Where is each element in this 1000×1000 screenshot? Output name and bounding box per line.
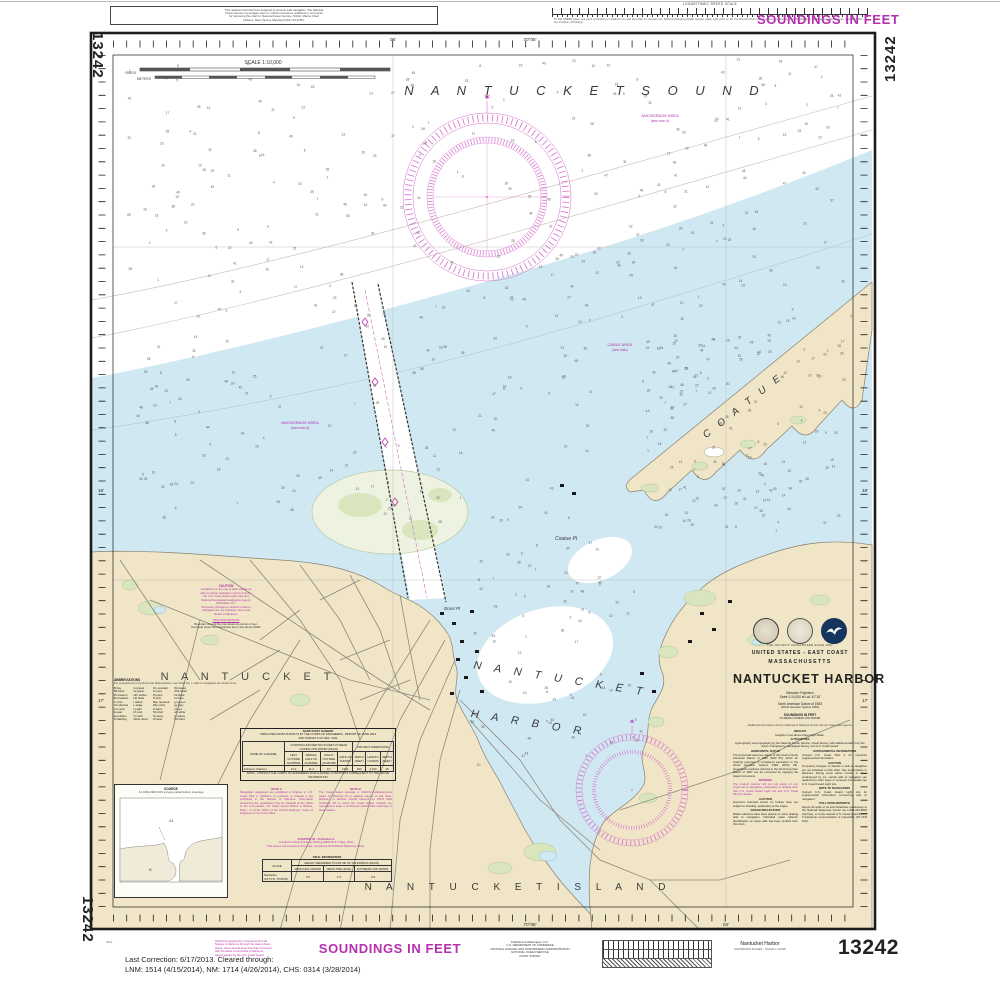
sounding: 24 xyxy=(725,525,729,529)
sounding: 19 xyxy=(830,458,834,462)
sounding: 21 xyxy=(373,384,377,388)
edge-label-bottom: 70°05' xyxy=(524,922,537,927)
chart-number-bottom-left: 13242 xyxy=(79,896,96,943)
sounding: 9 xyxy=(492,106,494,110)
sounding: 31 xyxy=(710,221,714,225)
sounding: 4 xyxy=(821,75,823,79)
sounding: 8 xyxy=(177,64,179,68)
sounding: 41 xyxy=(639,730,643,734)
sounding: 17 xyxy=(679,488,683,492)
sounding: 9 xyxy=(635,718,637,722)
sounding: 43 xyxy=(170,482,174,486)
sounding: 6 xyxy=(175,506,177,510)
sounding: 44 xyxy=(743,176,747,180)
sounding: 4 xyxy=(819,409,821,413)
sounding: 20 xyxy=(480,559,484,563)
sounding: 23 xyxy=(510,298,514,302)
sounding: 8 xyxy=(479,64,481,68)
note-line: Division, Silver Spring, Maryland (301-7… xyxy=(115,19,433,22)
sounding: 21 xyxy=(400,205,404,209)
unit-conversion-grid xyxy=(602,940,712,968)
sounding: 16 xyxy=(160,141,164,145)
correction-note: Last Correction: 6/17/2013. Cleared thro… xyxy=(125,955,361,975)
sounding: 29 xyxy=(528,195,532,199)
sounding: 33 xyxy=(615,600,619,604)
sounding: 36 xyxy=(759,509,763,513)
sounding: 30 xyxy=(564,354,568,358)
sounding: 1 xyxy=(698,295,700,299)
sounding: 5 xyxy=(642,380,644,384)
sounding: 7 xyxy=(237,502,239,506)
sounding: 23 xyxy=(635,738,639,742)
sounding: 39 xyxy=(310,190,314,194)
label-nantucket-sound: N A N T U C K E T S O U N D xyxy=(404,83,765,98)
sounding: 2 xyxy=(412,125,414,129)
sounding: 28 xyxy=(511,239,515,243)
sounding: 22 xyxy=(695,383,699,387)
sounding: 35 xyxy=(735,502,739,506)
sounding: 37 xyxy=(636,233,640,237)
note-b: NOTE B The Coast Guard operates a VHF-FM… xyxy=(319,788,392,816)
scale-bar: SCALE 1:10,000 YARDS METERS xyxy=(125,60,390,81)
sounding: 18 xyxy=(547,585,551,589)
sounding: 15 xyxy=(748,455,752,459)
speed-scale-title: LOGARITHMIC SPEED SCALE xyxy=(552,2,868,6)
sounding: 39 xyxy=(816,374,820,378)
sounding: 49 xyxy=(383,204,387,208)
tidal-information-table: TIDAL INFORMATION PLACE HEIGHT REFERRED … xyxy=(262,856,392,882)
sounding: 45 xyxy=(364,193,368,197)
notes-a-b: NOTE A Navigation regulations are publis… xyxy=(240,788,392,816)
sounding: 43 xyxy=(582,260,586,264)
sounding: 43 xyxy=(779,59,783,63)
plate-note: 4601 xyxy=(106,941,112,944)
sounding: 2 xyxy=(850,314,852,318)
sounding: 20 xyxy=(699,304,703,308)
sounding: 19 xyxy=(674,339,678,343)
sounding: 15 xyxy=(508,680,512,684)
sounding: 15 xyxy=(261,153,265,157)
sounding: 44 xyxy=(700,348,704,352)
sounding: 14 xyxy=(682,519,686,523)
water-note-1a: ANCHORAGE AREA xyxy=(641,113,679,118)
sounding: 1 xyxy=(647,449,649,453)
water-note-1b: (see note A) xyxy=(651,119,669,123)
sounding: 36 xyxy=(421,127,425,131)
sounding: 47 xyxy=(651,303,655,307)
sounding: 33 xyxy=(353,451,357,455)
sounding: 13 xyxy=(706,185,710,189)
sounding: 14 xyxy=(739,279,743,283)
edge-label-right-a: 18' xyxy=(862,488,868,493)
sounding: 10 xyxy=(452,428,456,432)
sounding: 6 xyxy=(524,594,526,598)
sounding: 34 xyxy=(417,196,421,200)
label-coatue-pt: Coatue Pt xyxy=(555,536,578,542)
sounding: 41 xyxy=(384,512,388,516)
sounding: 30 xyxy=(494,417,498,421)
sounding: 23 xyxy=(190,481,194,485)
edge-label-top: 70°05' xyxy=(524,37,537,42)
sounding: 32 xyxy=(436,496,440,500)
sounding: 45 xyxy=(711,338,715,342)
sounding: 28 xyxy=(127,213,131,217)
sounding: 7 xyxy=(435,305,437,309)
sounding: 11 xyxy=(561,376,565,380)
sounding: 29 xyxy=(155,385,159,389)
sounding: 14 xyxy=(796,360,800,364)
sounding: 23 xyxy=(741,284,745,288)
sounding: 6 xyxy=(777,422,779,426)
sounding: 14 xyxy=(575,403,579,407)
sounding: 21 xyxy=(745,211,749,215)
sounding: 48 xyxy=(837,344,841,348)
sounding: 35 xyxy=(346,214,350,218)
sounding: 8 xyxy=(160,371,162,375)
sounding: 48 xyxy=(253,149,257,153)
sounding: 38 xyxy=(420,367,424,371)
anch-c1: LEFT OUTSIDE QUARTER xyxy=(285,752,303,766)
sounding: 22 xyxy=(586,424,590,428)
sounding: 29 xyxy=(837,514,841,518)
sounding: 42 xyxy=(769,489,773,493)
sounding: 9 xyxy=(804,348,806,352)
tb-rb3: Consult U.S. Coast Guard Light List for … xyxy=(802,791,867,801)
sounding: 35 xyxy=(517,560,521,564)
sounding: 4 xyxy=(273,181,275,185)
sounding: 8 xyxy=(536,543,538,547)
tb-gps-note: Additional information can be obtained a… xyxy=(733,724,867,727)
source-diagram-inset: SOURCE A1 1940-1990 NOS surveys partial … xyxy=(114,784,228,898)
sounding: 20 xyxy=(762,514,766,518)
anch-hleft: CONTROLLING DEPTHS IN FEET AT MEAN LOWER… xyxy=(285,742,353,752)
sounding: 1 xyxy=(535,568,537,572)
sounding: 13 xyxy=(342,133,346,137)
tidal-datum-note-3: Overhead power line clearances are in fe… xyxy=(168,626,284,629)
sounding: 26 xyxy=(249,241,253,245)
sounding: 31 xyxy=(803,222,807,226)
sounding: 17 xyxy=(166,111,170,115)
sounding: 21 xyxy=(245,391,249,395)
sounding: 10 xyxy=(492,640,496,644)
sounding: 45 xyxy=(381,337,385,341)
sounding: 17 xyxy=(811,356,815,360)
sounding: 29 xyxy=(768,350,772,354)
sounding: 25 xyxy=(738,336,742,340)
sounding: 34 xyxy=(610,740,614,744)
sounding: 30 xyxy=(499,518,503,522)
anch-c0: NAME OF CHANNEL xyxy=(243,742,285,766)
anch-c5: WIDTH (FEET) xyxy=(353,752,366,766)
sounding: 26 xyxy=(687,519,691,523)
tb-lb4: Radar reflectors have been placed on man… xyxy=(733,813,798,827)
sounding: 45 xyxy=(522,297,526,301)
water-note-2a: ANCHORAGE AREA xyxy=(281,420,319,425)
sounding: 16 xyxy=(382,312,386,316)
tb-rb2: Temporary changes or defects in aids to … xyxy=(802,765,867,786)
sounding: 4 xyxy=(638,194,640,198)
sounding: 23 xyxy=(788,469,792,473)
sounding: 9 xyxy=(398,444,400,448)
sounding: 10 xyxy=(592,64,596,68)
sounding: 10 xyxy=(808,374,812,378)
sounding: 8 xyxy=(420,490,422,494)
sounding: 30 xyxy=(841,280,845,284)
sounding: 43 xyxy=(578,619,582,623)
sounding: 7 xyxy=(169,401,171,405)
sounding: 20 xyxy=(161,163,165,167)
sounding: 47 xyxy=(748,447,752,451)
sounding: 39 xyxy=(281,486,285,490)
logarithmic-speed-scale: LOGARITHMIC SPEED SCALE To find SPEED pl… xyxy=(552,2,868,6)
sounding: 43 xyxy=(721,71,725,75)
sounding: 32 xyxy=(648,101,652,105)
sounding: 6 xyxy=(735,525,737,529)
note-a: NOTE A Navigation regulations are publis… xyxy=(240,788,313,816)
sounding: 10 xyxy=(609,614,613,618)
sounding: 9 xyxy=(548,391,550,395)
sounding: 27 xyxy=(567,296,571,300)
sounding: 21 xyxy=(193,132,197,136)
sounding: 48 xyxy=(527,736,531,740)
tidal-place-h: PLACE xyxy=(263,860,292,872)
sounding: 43 xyxy=(466,289,470,293)
sounding: 32 xyxy=(563,599,567,603)
sounding: 29 xyxy=(196,314,200,318)
sounding: 46 xyxy=(343,203,347,207)
sounding: 16 xyxy=(265,267,269,271)
sounding: 23 xyxy=(228,246,232,250)
sounding: 18 xyxy=(752,227,756,231)
sounding: 29 xyxy=(594,192,598,196)
sounding: 48 xyxy=(587,154,591,158)
sounding: 4 xyxy=(694,460,696,464)
loran-note: CHARTED 30 - 40 Section A Locations of R… xyxy=(240,838,392,848)
sounding: 38 xyxy=(145,421,149,425)
source-caption: A1 1940-1990 NOS surveys partial bottom … xyxy=(115,791,227,794)
sounding: 9 xyxy=(801,419,803,423)
sounding: 18 xyxy=(439,345,443,349)
sounding: 21 xyxy=(478,414,482,418)
sounding: 14 xyxy=(330,469,334,473)
anch-c6: LENGTH (YARDS) xyxy=(366,752,381,766)
chart-title: NANTUCKET HARBOR xyxy=(733,672,867,686)
sounding: 28 xyxy=(129,267,133,271)
tidal-flats xyxy=(312,470,468,554)
sounding: 6 xyxy=(568,516,570,520)
sounding: 38 xyxy=(162,516,166,520)
sounding: 2 xyxy=(582,169,584,173)
sounding: 40 xyxy=(542,62,546,66)
sounding: 2 xyxy=(166,228,168,232)
sounding: 36 xyxy=(197,105,201,109)
sounding: 43 xyxy=(815,187,819,191)
sounding: 31 xyxy=(231,279,235,283)
sounding: 30 xyxy=(665,513,669,517)
edge-label-left-b: 17' xyxy=(98,698,104,703)
sounding: 24 xyxy=(734,346,738,350)
sounding: 29 xyxy=(211,169,215,173)
sounding: 15 xyxy=(225,340,229,344)
sounding: 21 xyxy=(723,237,727,241)
sounding: 18 xyxy=(511,138,515,142)
sounding: 10 xyxy=(477,763,481,767)
tb-rb1: Consult U.S. Coast Pilot 2 for important… xyxy=(802,754,867,761)
sounding: 32 xyxy=(192,349,196,353)
sounding: 41 xyxy=(674,266,678,270)
tb-soundings2: AT MEAN LOWER LOW WATER xyxy=(733,717,867,720)
sounding: 23 xyxy=(506,553,510,557)
sounding: 38 xyxy=(590,122,594,126)
sounding: 46 xyxy=(712,387,716,391)
sounding: 6 xyxy=(192,355,194,359)
sounding: 35 xyxy=(425,446,429,450)
abbreviations-block: ABBREVIATIONS For complete list of symbo… xyxy=(114,678,262,721)
sounding: 21 xyxy=(715,117,719,121)
sounding: 8 xyxy=(535,140,537,144)
sounding: 41 xyxy=(607,64,611,68)
sounding: 37 xyxy=(589,390,593,394)
sounding: 41 xyxy=(729,426,733,430)
sounding: 9 xyxy=(764,482,766,486)
sounding: 35 xyxy=(412,371,416,375)
sounding: 21 xyxy=(561,346,565,350)
sounding: 49 xyxy=(318,476,322,480)
sounding: 24 xyxy=(174,482,178,486)
sounding: 18 xyxy=(805,477,809,481)
sounding: 4 xyxy=(263,436,265,440)
sounding: 4 xyxy=(648,409,650,413)
sounding: 11 xyxy=(545,690,549,694)
sounding: 11 xyxy=(356,487,360,491)
scale-units-bottom: METERS xyxy=(137,77,152,81)
sounding: 21 xyxy=(345,463,349,467)
sounding: 19 xyxy=(175,195,179,199)
sounding: 33 xyxy=(492,634,496,638)
sounding: 18 xyxy=(755,210,759,214)
tidal-table-row: Nantucket(41°17'N, 70°06'W) 3.0 1.5 -3.5 xyxy=(263,872,392,882)
sounding: 19 xyxy=(646,346,650,350)
sounding: 41 xyxy=(726,117,730,121)
sounding: 33 xyxy=(659,396,663,400)
sounding: 41 xyxy=(674,174,678,178)
sounding: 8 xyxy=(758,440,760,444)
sounding: 45 xyxy=(412,71,416,75)
sounding: 36 xyxy=(202,232,206,236)
sounding: 27 xyxy=(391,91,395,95)
sounding: 18 xyxy=(649,430,653,434)
abbreviations-columns: B bayBk bankBn beaconBr breakersC coveCh… xyxy=(114,687,262,722)
sounding: 12 xyxy=(757,352,761,356)
sounding: 12 xyxy=(803,440,807,444)
sounding: 22 xyxy=(575,253,579,257)
sounding: 27 xyxy=(344,353,348,357)
sounding: 49 xyxy=(211,185,215,189)
sounding: 6 xyxy=(665,190,667,194)
scale-bar-title: SCALE 1:10,000 xyxy=(244,60,281,66)
sounding: 48 xyxy=(680,383,684,387)
sounding: 4 xyxy=(621,315,623,319)
sounding: 4 xyxy=(716,239,718,243)
sounding: 5 xyxy=(293,116,295,120)
sounding: 23 xyxy=(369,92,373,96)
sounding: 32 xyxy=(758,472,762,476)
sounding: 23 xyxy=(301,106,305,110)
sounding: 6 xyxy=(697,475,699,479)
sounding: 7 xyxy=(837,106,839,110)
anch-c2: MIDDLE HALF OF CHANNEL xyxy=(302,752,320,766)
sounding: 45 xyxy=(249,77,253,81)
sounding: 41 xyxy=(743,497,747,501)
sounding: 3 xyxy=(239,290,241,294)
sounding: 4 xyxy=(765,102,767,106)
note-b-body: The Coast Guard operates a VHF-FM radiot… xyxy=(319,791,392,812)
sounding: 22 xyxy=(572,59,576,63)
sounding: 9 xyxy=(520,386,522,390)
sounding: 23 xyxy=(726,339,730,343)
sounding: 10 xyxy=(292,489,296,493)
sounding: 6 xyxy=(304,149,306,153)
sounding: 48 xyxy=(585,304,589,308)
sounding: 42 xyxy=(768,333,772,337)
sounding: 6 xyxy=(700,371,702,375)
sounding: 2 xyxy=(515,593,517,597)
edge-label-left-a: 18' xyxy=(98,488,104,493)
region-title: UNITED STATES - EAST COAST xyxy=(733,650,867,657)
sounding: 36 xyxy=(584,347,588,351)
source-zone-b: B xyxy=(149,867,152,872)
sounding: 13 xyxy=(578,320,582,324)
sounding: 1 xyxy=(693,467,695,471)
anch-c3: RIGHT OUTSIDE QUARTER xyxy=(320,752,338,766)
title-block: THE NATION'S CHARTMAKER SINCE 1807 UNITE… xyxy=(733,618,867,827)
sounding: 45 xyxy=(629,274,633,278)
sounding: 2 xyxy=(419,154,421,158)
sounding: 49 xyxy=(704,143,708,147)
tidal-v2: 1.5 xyxy=(324,872,354,882)
sounding: 36 xyxy=(481,725,485,729)
sounding: 17 xyxy=(266,258,270,262)
sounding: 3 xyxy=(503,98,505,102)
sounding: 30 xyxy=(139,477,143,481)
sounding: 28 xyxy=(147,357,151,361)
sounding: 39 xyxy=(825,466,829,470)
sounding: 46 xyxy=(668,361,672,365)
sounding: 43 xyxy=(685,147,689,151)
sounding: 10 xyxy=(431,358,435,362)
sounding: 38 xyxy=(438,520,442,524)
caution-lines: Limitations on the use of radio signals … xyxy=(168,588,284,616)
sounding: 3 xyxy=(425,140,427,144)
abbr-entry: hrd hard xyxy=(174,718,187,721)
sounding: 19 xyxy=(754,506,758,510)
sounding: 45 xyxy=(239,385,243,389)
sounding: 6 xyxy=(259,154,261,158)
sounding: 16 xyxy=(361,150,365,154)
sounding: 3 xyxy=(722,224,724,228)
sounding: 49 xyxy=(259,100,263,104)
sounding: 12 xyxy=(595,271,599,275)
sounding: 46 xyxy=(673,160,677,164)
sounding: 20 xyxy=(128,136,132,140)
coast-survey-seal-icon xyxy=(787,618,813,644)
sounding: 1 xyxy=(827,348,829,352)
sounding: 16 xyxy=(503,385,507,389)
sounding: 34 xyxy=(570,285,574,289)
sounding: 3 xyxy=(569,615,571,619)
sounding: 2 xyxy=(386,498,388,502)
sounding: 13 xyxy=(782,460,786,464)
